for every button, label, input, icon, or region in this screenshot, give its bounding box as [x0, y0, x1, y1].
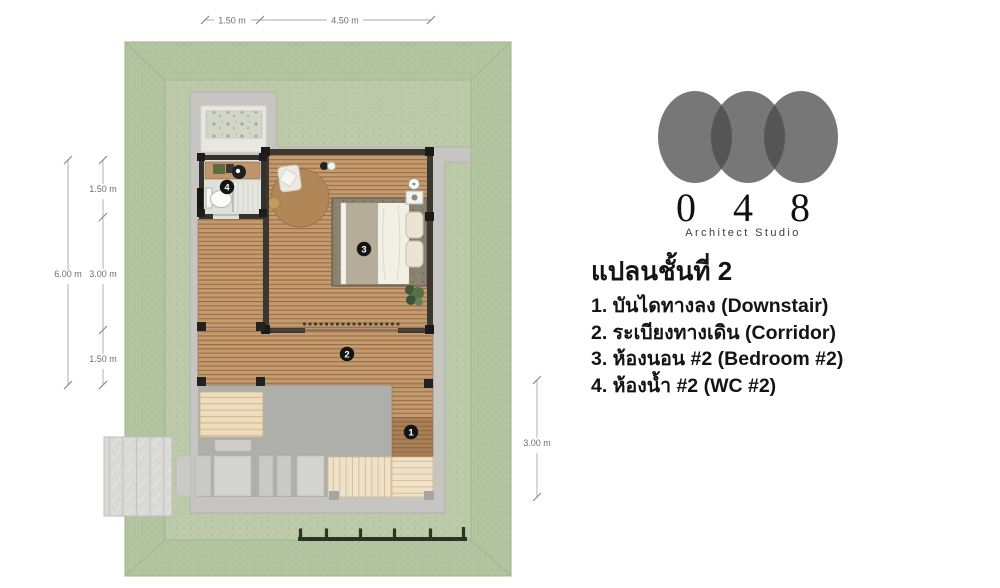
bedside-lamp-dot: [413, 183, 416, 186]
lounge-chair: [277, 165, 301, 193]
legend-title: แปลนชั้นที่ 2: [591, 256, 921, 286]
pillow: [406, 212, 423, 238]
logo-digits: 0 4 8: [676, 188, 810, 228]
wc-door-left: [197, 188, 203, 209]
logo-digit: 0: [676, 188, 696, 228]
wc-plant-tray: [213, 164, 225, 174]
ceiling-light-shade: [328, 162, 336, 170]
badge-corridor-num: 2: [344, 349, 349, 360]
washbasin-drain: [236, 169, 240, 173]
ceiling-light-icon: [320, 162, 328, 170]
shower-area: [233, 182, 261, 212]
court-planter: [206, 111, 262, 138]
logo-digit: 4: [733, 188, 753, 228]
nightstand-item: [412, 195, 418, 201]
stepping-stone-path: [176, 456, 324, 496]
legend-item-downstair: 1. บันไดทางลง (Downstair): [591, 293, 921, 320]
pillow: [406, 241, 423, 267]
badge-bedroom-num: 3: [361, 244, 366, 255]
dim-right: 3.00 m: [523, 438, 551, 448]
stone-patio: [104, 437, 172, 516]
badge-wc-num: 4: [224, 182, 230, 193]
legend-item-corridor: 2. ระเบียงทางเดิน (Corridor): [591, 320, 921, 347]
floor-plan-sheet: 1.50 m 4.50 m 6.00 m 1.50 m 3.00 m 1.50 …: [0, 0, 1000, 588]
landing-post-left: [329, 491, 339, 500]
logo-circle-right: [764, 91, 838, 183]
basket: [268, 197, 280, 209]
landing-post-right: [424, 491, 434, 500]
dim-left-seg-3: 1.50 m: [89, 354, 117, 364]
stairs-lower-left: [200, 392, 263, 437]
stepping-stone: [215, 440, 251, 451]
dim-top-1: 1.50 m: [218, 16, 246, 26]
badge-downstair-num: 1: [408, 427, 414, 438]
logo-digit: 8: [790, 188, 810, 228]
plan-legend: แปลนชั้นที่ 2 1. บันไดทางลง (Downstair) …: [591, 256, 921, 399]
legend-item-wc: 4. ห้องน้ำ #2 (WC #2): [591, 373, 921, 400]
dim-left-overall: 6.00 m: [54, 269, 82, 279]
logo-circles-icon: [650, 82, 860, 192]
entry-court: [201, 106, 266, 152]
legend-item-bedroom: 3. ห้องนอน #2 (Bedroom #2): [591, 346, 921, 373]
deck-corridor: [198, 330, 433, 385]
dim-left-seg-1: 1.50 m: [89, 184, 117, 194]
logo-subtitle: Architect Studio: [655, 227, 831, 239]
dim-top-2: 4.50 m: [331, 16, 359, 26]
bedroom: [261, 147, 434, 334]
dim-left-seg-2: 3.00 m: [89, 269, 117, 279]
